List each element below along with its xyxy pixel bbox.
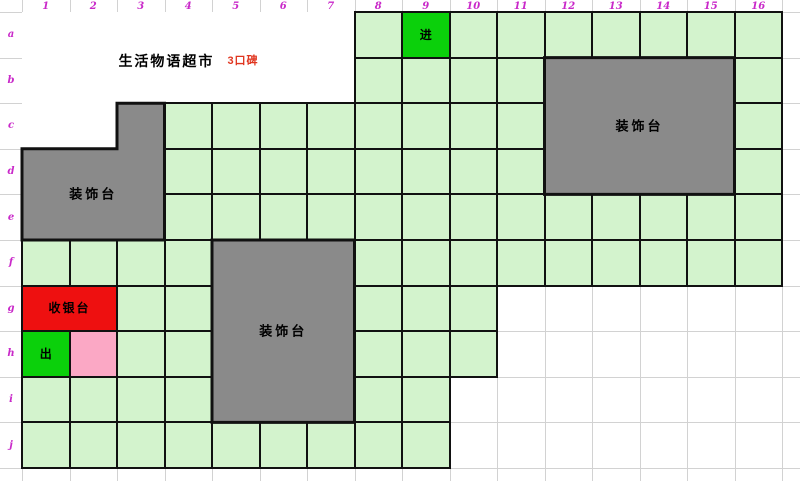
cell-e9[interactable] [401,193,451,241]
cell-c9[interactable] [401,102,451,150]
col-header-1[interactable]: 1 [22,0,70,12]
cell-a11[interactable] [496,11,546,59]
cell-d10[interactable] [449,148,499,196]
cell-c6[interactable] [259,102,309,150]
cell-e5[interactable] [211,193,261,241]
cell-f1[interactable] [21,239,71,287]
cell-e11[interactable] [496,193,546,241]
col-header-2[interactable]: 2 [70,0,118,12]
cell-d4[interactable] [164,148,214,196]
cell-a10[interactable] [449,11,499,59]
cell-a8[interactable] [354,11,404,59]
cell-c16[interactable] [734,102,784,150]
cell-e8[interactable] [354,193,404,241]
entrance-cell[interactable]: 进 [401,11,451,59]
cell-g10[interactable] [449,285,499,333]
cell-g9[interactable] [401,285,451,333]
cell-f3[interactable] [116,239,166,287]
cell-b11[interactable] [496,57,546,105]
cell-j9[interactable] [401,421,451,469]
cell-j1[interactable] [21,421,71,469]
cell-d11[interactable] [496,148,546,196]
row-header-h[interactable]: h [0,331,22,377]
cell-j7[interactable] [306,421,356,469]
entrance-cell-label: 进 [420,29,432,41]
cell-j5[interactable] [211,421,261,469]
cell-f10[interactable] [449,239,499,287]
col-header-3[interactable]: 3 [117,0,165,12]
cell-f14[interactable] [639,239,689,287]
cell-i4[interactable] [164,376,214,424]
exit-cell-label: 出 [40,348,52,360]
row-header-f[interactable]: f [0,240,22,286]
cell-g3[interactable] [116,285,166,333]
cell-e16[interactable] [734,193,784,241]
cell-d8[interactable] [354,148,404,196]
col-header-5[interactable]: 5 [212,0,260,12]
cell-d9[interactable] [401,148,451,196]
cell-f11[interactable] [496,239,546,287]
cell-a12[interactable] [544,11,594,59]
cell-e6[interactable] [259,193,309,241]
cell-h9[interactable] [401,330,451,378]
cell-b9[interactable] [401,57,451,105]
cell-e15[interactable] [686,193,736,241]
cell-b8[interactable] [354,57,404,105]
row-header-a[interactable]: a [0,12,22,58]
cell-d6[interactable] [259,148,309,196]
cell-c4[interactable] [164,102,214,150]
store-layout-sheet: 生活物语超市 3口碑 12345678910111213141516abcdef… [0,0,800,481]
cell-i9[interactable] [401,376,451,424]
cell-g4[interactable] [164,285,214,333]
cell-e14[interactable] [639,193,689,241]
row-header-c[interactable]: c [0,103,22,149]
row-header-g[interactable]: g [0,286,22,332]
cell-f4[interactable] [164,239,214,287]
cell-b10[interactable] [449,57,499,105]
cell-f8[interactable] [354,239,404,287]
cell-e10[interactable] [449,193,499,241]
cell-a14[interactable] [639,11,689,59]
cell-h8[interactable] [354,330,404,378]
cell-f13[interactable] [591,239,641,287]
cell-e4[interactable] [164,193,214,241]
cell-e7[interactable] [306,193,356,241]
col-header-7[interactable]: 7 [307,0,355,12]
cell-d7[interactable] [306,148,356,196]
cell-i2[interactable] [69,376,119,424]
cell-f2[interactable] [69,239,119,287]
cell-f16[interactable] [734,239,784,287]
cell-c10[interactable] [449,102,499,150]
cell-e12[interactable] [544,193,594,241]
row-header-e[interactable]: e [0,194,22,240]
store-title-cell[interactable]: 生活物语超市 3口碑 [22,12,355,103]
row-header-d[interactable]: d [0,149,22,195]
row-header-b[interactable]: b [0,58,22,104]
row-header-j[interactable]: j [0,422,22,468]
cell-i1[interactable] [21,376,71,424]
decoration-label-middle: 装饰台 [259,325,307,338]
cell-i8[interactable] [354,376,404,424]
cell-a13[interactable] [591,11,641,59]
col-header-6[interactable]: 6 [260,0,308,12]
decoration-label-right: 装饰台 [615,120,663,133]
store-title: 生活物语超市 [118,54,214,68]
cell-f12[interactable] [544,239,594,287]
cell-c7[interactable] [306,102,356,150]
cell-j6[interactable] [259,421,309,469]
cell-f9[interactable] [401,239,451,287]
cell-e13[interactable] [591,193,641,241]
cell-h4[interactable] [164,330,214,378]
cashier-label: 收银台 [48,302,90,314]
cell-f15[interactable] [686,239,736,287]
cell-c5[interactable] [211,102,261,150]
cell-b16[interactable] [734,57,784,105]
col-header-4[interactable]: 4 [165,0,213,12]
cell-d16[interactable] [734,148,784,196]
exit-cell[interactable]: 出 [21,330,71,378]
cell-d5[interactable] [211,148,261,196]
store-rating-badge: 3口碑 [227,56,258,67]
cell-j4[interactable] [164,421,214,469]
cell-c8[interactable] [354,102,404,150]
decoration-label-left: 装饰台 [69,188,117,201]
cell-h3[interactable] [116,330,166,378]
cell-j3[interactable] [116,421,166,469]
cell-c11[interactable] [496,102,546,150]
cell-h10[interactable] [449,330,499,378]
cell-i3[interactable] [116,376,166,424]
empty-merged-area [22,103,117,149]
row-header-i[interactable]: i [0,377,22,423]
cell-a16[interactable] [734,11,784,59]
cell-j8[interactable] [354,421,404,469]
cell-a15[interactable] [686,11,736,59]
pink-cell[interactable] [69,330,119,378]
cell-j2[interactable] [69,421,119,469]
cashier-block[interactable]: 收银台 [21,285,118,333]
cell-g8[interactable] [354,285,404,333]
